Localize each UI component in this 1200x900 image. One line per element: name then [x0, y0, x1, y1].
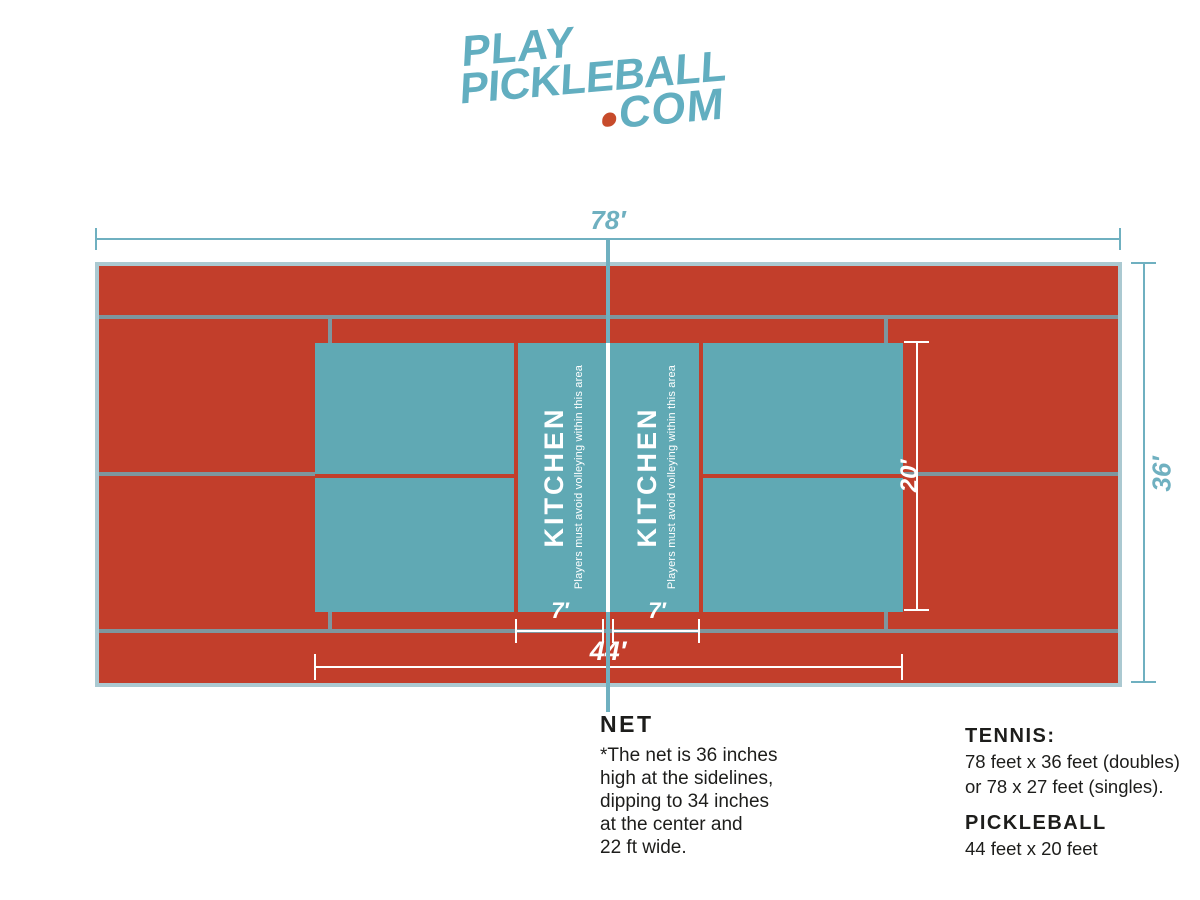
tennis-length-tick-right [1119, 228, 1121, 250]
pickleball-court-infographic: PLAY PICKLEBALL COM 78′ 36′ KITCHEN Play… [0, 0, 1200, 900]
kitchen-left-dim-line [515, 630, 604, 632]
playpickleball-logo: PLAY PICKLEBALL COM [457, 11, 729, 146]
logo-com-text: COM [618, 85, 725, 132]
pickleball-legend-line: 44 feet x 20 feet [965, 838, 1180, 860]
tennis-length-label: 78′ [558, 205, 658, 236]
net-line-over-court [606, 343, 610, 612]
kitchen-subtitle: Players must avoid volleying within this… [573, 365, 585, 589]
kitchen-label-right: KITCHEN Players must avoid volleying wit… [632, 365, 678, 589]
pickleball-length-tick-right [901, 654, 903, 680]
kitchen-subtitle: Players must avoid volleying within this… [666, 365, 678, 589]
tennis-width-tick-top [1131, 262, 1156, 264]
kitchen-left-label: 7′ [532, 598, 588, 624]
kitchen-line-left [514, 343, 518, 612]
kitchen-title: KITCHEN [632, 407, 663, 548]
dimensions-legend: TENNIS: 78 feet x 36 feet (doubles) or 7… [965, 725, 1180, 860]
kitchen-label-left: KITCHEN Players must avoid volleying wit… [539, 365, 585, 589]
kitchen-right-label: 7′ [629, 598, 685, 624]
pickleball-center-line-left [315, 474, 514, 478]
kitchen-title: KITCHEN [539, 407, 570, 548]
pickleball-width-tick-top [904, 341, 929, 343]
pickleball-width-tick-bottom [904, 609, 929, 611]
tennis-width-label: 36′ [1147, 456, 1178, 491]
pickleball-length-tick-left [314, 654, 316, 680]
tennis-legend-line1: 78 feet x 36 feet (doubles) [965, 751, 1180, 773]
tennis-width-tick-bottom [1131, 681, 1156, 683]
pickleball-width-label: 20′ [896, 460, 924, 492]
kitchen-right-dim-line [612, 630, 700, 632]
pickleball-legend-title: PICKLEBALL [965, 812, 1180, 835]
net-note-title: NET [600, 711, 777, 738]
pickleball-center-line-right [703, 474, 903, 478]
tennis-width-dim-line [1143, 263, 1145, 683]
tennis-legend-title: TENNIS: [965, 725, 1180, 748]
net-note: NET *The net is 36 inches high at the si… [600, 711, 777, 859]
net-note-body: *The net is 36 inches high at the sideli… [600, 744, 777, 859]
pickleball-dot-icon [602, 112, 617, 127]
tennis-legend-line2: or 78 x 27 feet (singles). [965, 776, 1180, 798]
tennis-length-tick-left [95, 228, 97, 250]
